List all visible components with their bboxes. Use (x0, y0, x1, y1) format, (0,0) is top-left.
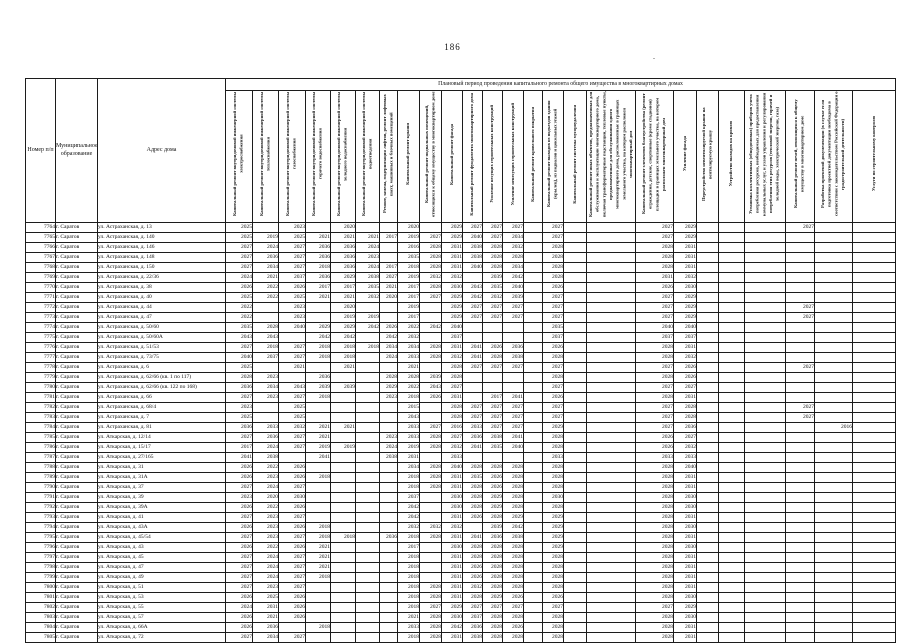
year-cell-4: 2018 (306, 573, 331, 583)
year-cell-12: 2028 (483, 633, 503, 643)
year-cell-3: 2027 (279, 563, 306, 573)
year-cell-10: 2031 (442, 473, 463, 483)
table-row: 7779г. Саратовул. Астраханская, д. 62/66… (26, 373, 896, 383)
year-cell-9: 2028 (420, 353, 442, 363)
municipality-cell: г. Саратов (56, 353, 98, 363)
year-cell-16 (564, 393, 587, 403)
year-cell-24 (815, 443, 853, 453)
year-cell-23 (786, 493, 815, 503)
year-cell-11: 2027 (463, 603, 483, 613)
year-cell-17 (587, 523, 636, 533)
year-cell-23 (786, 443, 815, 453)
year-cell-16 (564, 513, 587, 523)
year-cell-22 (745, 563, 786, 573)
year-cell-2: 2022 (253, 283, 279, 293)
year-cell-9: 2028 (420, 243, 442, 253)
year-cell-8: 2042 (398, 503, 420, 513)
year-cell-25 (853, 503, 896, 513)
year-cell-2: 2022 (253, 293, 279, 303)
year-cell-18: 2028 (636, 493, 674, 503)
year-cell-3: 2027 (279, 633, 306, 643)
table-row: 7764г. Саратовул. Астраханская, д. 13202… (26, 223, 896, 233)
year-cell-11: 2038 (463, 253, 483, 263)
year-cell-18: 2028 (636, 483, 674, 493)
year-cell-25 (853, 563, 896, 573)
year-cell-7 (380, 613, 398, 623)
year-cell-18: 2027 (636, 233, 674, 243)
year-cell-17 (587, 543, 636, 553)
year-cell-18: 2033 (636, 453, 674, 463)
year-cell-17 (587, 393, 636, 403)
municipality-cell: г. Саратов (56, 363, 98, 373)
address-cell: ул. Аткарская, д. 43 (98, 543, 226, 553)
year-cell-23 (786, 333, 815, 343)
municipality-cell: г. Саратов (56, 433, 98, 443)
year-cell-5 (331, 413, 356, 423)
row-number-cell: 7770 (26, 283, 56, 293)
year-cell-6: 2038 (356, 273, 380, 283)
year-cell-18: 2028 (636, 393, 674, 403)
year-cell-14 (524, 263, 543, 273)
year-cell-22 (745, 363, 786, 373)
year-cell-16 (564, 383, 587, 393)
year-cell-22 (745, 613, 786, 623)
year-cell-24 (815, 493, 853, 503)
year-cell-23 (786, 293, 815, 303)
year-cell-11: 2027 (463, 363, 483, 373)
year-cell-11: 2041 (463, 443, 483, 453)
year-cell-22 (745, 593, 786, 603)
year-cell-23 (786, 463, 815, 473)
year-cell-14 (524, 423, 543, 433)
year-cell-19: 2036 (674, 423, 697, 433)
year-cell-22 (745, 383, 786, 393)
year-cell-1: 2027 (226, 583, 253, 593)
year-cell-24 (815, 573, 853, 583)
year-cell-3: 2027 (279, 443, 306, 453)
address-cell: ул. Аткарская, д. 53 (98, 593, 226, 603)
municipality-cell: г. Саратов (56, 503, 98, 513)
municipality-cell: г. Саратов (56, 263, 98, 273)
row-number-cell: 7776 (26, 343, 56, 353)
year-cell-10: 2029 (442, 233, 463, 243)
year-cell-16 (564, 373, 587, 383)
year-cell-4 (306, 613, 331, 623)
year-cell-4: 2018 (306, 263, 331, 273)
year-cell-1: 2026 (226, 463, 253, 473)
year-cell-3: 2037 (279, 273, 306, 283)
year-cell-9 (420, 493, 442, 503)
year-cell-13: 2027 (503, 303, 524, 313)
year-cell-25 (853, 413, 896, 423)
year-cell-18: 2040 (636, 323, 674, 333)
year-cell-24 (815, 263, 853, 273)
year-cell-10: 2031 (442, 243, 463, 253)
address-cell: ул. Аткарская, д. 55 (98, 603, 226, 613)
address-cell: ул. Аткарская, д. 39 (98, 493, 226, 503)
year-cell-6 (356, 583, 380, 593)
year-cell-13: 2032 (503, 243, 524, 253)
year-cell-22 (745, 373, 786, 383)
year-cell-9: 2027 (420, 603, 442, 613)
row-number-cell: 7771 (26, 293, 56, 303)
page-number: 186 (0, 42, 905, 52)
year-cell-25 (853, 353, 896, 363)
year-cell-20 (697, 483, 719, 493)
year-cell-2: 2022 (253, 543, 279, 553)
year-cell-18: 2027 (636, 413, 674, 423)
table-row: 7765г. Саратовул. Астраханская, д. 14020… (26, 233, 896, 243)
year-cell-14 (524, 503, 543, 513)
year-cell-25 (853, 493, 896, 503)
year-cell-6 (356, 393, 380, 403)
year-cell-3: 2027 (279, 573, 306, 583)
year-cell-4: 2017 (306, 283, 331, 293)
year-cell-25 (853, 633, 896, 643)
year-cell-1: 2043 (226, 333, 253, 343)
year-cell-19: 2033 (674, 453, 697, 463)
year-cell-16 (564, 573, 587, 583)
row-number-cell: 7767 (26, 253, 56, 263)
year-cell-24 (815, 563, 853, 573)
municipality-cell: г. Саратов (56, 613, 98, 623)
year-cell-22 (745, 543, 786, 553)
row-number-cell: 7801 (26, 593, 56, 603)
address-cell: ул. Аткарская, д. 31 (98, 463, 226, 473)
year-cell-3: 2027 (279, 433, 306, 443)
year-cell-22 (745, 293, 786, 303)
year-cell-21 (719, 243, 745, 253)
year-cell-9: 2028 (420, 343, 442, 353)
year-cell-13: 2039 (503, 293, 524, 303)
address-cell: ул. Астраханская, д. 140 (98, 233, 226, 243)
year-cell-8: 2034 (398, 343, 420, 353)
year-cell-7: 2042 (380, 333, 398, 343)
year-cell-11: 2028 (463, 543, 483, 553)
year-cell-8: 2018 (398, 533, 420, 543)
year-cell-20 (697, 473, 719, 483)
year-cell-19: 2031 (674, 393, 697, 403)
year-cell-13 (503, 453, 524, 463)
year-cell-1: 2017 (226, 443, 253, 453)
year-cell-25 (853, 543, 896, 553)
address-cell: ул. Аткарская, д. 45 (98, 553, 226, 563)
year-cell-9 (420, 453, 442, 463)
year-cell-19: 2029 (674, 313, 697, 323)
year-cell-13: 2041 (503, 433, 524, 443)
year-cell-18: 2028 (636, 613, 674, 623)
year-cell-7 (380, 473, 398, 483)
year-cell-4: 2018 (306, 353, 331, 363)
year-cell-21 (719, 613, 745, 623)
work-type-header-1: Капитальный ремонт внутридомовой инженер… (226, 91, 253, 223)
year-cell-9 (420, 363, 442, 373)
year-cell-2: 2024 (253, 573, 279, 583)
year-cell-17 (587, 463, 636, 473)
year-cell-13: 2027 (503, 363, 524, 373)
year-cell-21 (719, 383, 745, 393)
work-type-header-label: Капитальный ремонт внутридомовой инженер… (361, 91, 374, 217)
year-cell-22 (745, 603, 786, 613)
year-cell-14 (524, 533, 543, 543)
year-cell-23 (786, 613, 815, 623)
row-number-cell: 7764 (26, 223, 56, 233)
year-cell-4 (306, 403, 331, 413)
address-cell: ул. Астраханская, д. 73/75 (98, 353, 226, 363)
row-number-cell: 7786 (26, 443, 56, 453)
year-cell-24 (815, 393, 853, 403)
year-cell-24 (815, 383, 853, 393)
year-cell-25 (853, 373, 896, 383)
year-cell-7 (380, 553, 398, 563)
year-cell-12: 2028 (483, 613, 503, 623)
year-cell-12: 2027 (483, 233, 503, 243)
year-cell-10: 2031 (442, 533, 463, 543)
year-cell-6 (356, 543, 380, 553)
year-cell-24 (815, 553, 853, 563)
year-cell-10: 2029 (442, 223, 463, 233)
year-cell-15: 2028 (543, 583, 564, 593)
year-cell-8: 2021 (398, 613, 420, 623)
year-cell-15: 2028 (543, 633, 564, 643)
row-number-cell: 7797 (26, 553, 56, 563)
year-cell-4 (306, 493, 331, 503)
year-cell-23: 2027 (786, 403, 815, 413)
work-type-header-17: Капитальный ремонт иных объектов, предна… (587, 91, 636, 223)
year-cell-3: 2027 (279, 243, 306, 253)
year-cell-21 (719, 413, 745, 423)
work-type-header-label: Разработка проектной документации (в слу… (820, 91, 847, 217)
year-cell-5 (331, 373, 356, 383)
municipality-cell: г. Саратов (56, 463, 98, 473)
year-cell-2: 2023 (253, 513, 279, 523)
year-cell-11: 2028 (463, 463, 483, 473)
year-cell-7 (380, 363, 398, 373)
year-cell-13: 2028 (503, 543, 524, 553)
year-cell-4 (306, 223, 331, 233)
year-cell-13: 2028 (503, 463, 524, 473)
year-cell-12: 2038 (483, 433, 503, 443)
year-cell-11: 2042 (463, 293, 483, 303)
year-cell-6 (356, 373, 380, 383)
municipality-cell: г. Саратов (56, 633, 98, 643)
year-cell-15: 2027 (543, 383, 564, 393)
year-cell-1: 2023 (226, 403, 253, 413)
municipality-cell: г. Саратов (56, 443, 98, 453)
year-cell-2: 2023 (253, 533, 279, 543)
address-cell: ул. Астраханская, д. 148 (98, 253, 226, 263)
municipality-cell: г. Саратов (56, 233, 98, 243)
year-cell-8: 2021 (398, 363, 420, 373)
year-cell-6 (356, 403, 380, 413)
year-cell-11: 2027 (463, 403, 483, 413)
year-cell-20 (697, 603, 719, 613)
year-cell-19: 2031 (674, 583, 697, 593)
row-number-cell: 7766 (26, 243, 56, 253)
year-cell-6 (356, 573, 380, 583)
year-cell-11: 2037 (463, 613, 483, 623)
year-cell-8: 2022 (398, 323, 420, 333)
year-cell-15: 2028 (543, 273, 564, 283)
year-cell-1: 2027 (226, 553, 253, 563)
year-cell-8: 2018 (398, 553, 420, 563)
year-cell-8: 2016 (398, 243, 420, 253)
year-cell-22 (745, 223, 786, 233)
year-cell-21 (719, 473, 745, 483)
year-cell-16 (564, 243, 587, 253)
year-cell-4 (306, 583, 331, 593)
year-cell-17 (587, 613, 636, 623)
year-cell-16 (564, 223, 587, 233)
year-cell-6 (356, 523, 380, 533)
year-cell-18: 2028 (636, 503, 674, 513)
year-cell-21 (719, 363, 745, 373)
year-cell-17 (587, 623, 636, 633)
address-cell: ул. Астраханская, д. 62/66 (кв. 1 по 117… (98, 373, 226, 383)
year-cell-20 (697, 443, 719, 453)
column-header-municipality: Муниципальное образование (56, 79, 98, 223)
year-cell-9: 2027 (420, 293, 442, 303)
work-type-header-14: Капитальный ремонт кровельного покрытия (524, 91, 543, 223)
year-cell-13: 2028 (503, 553, 524, 563)
year-cell-15: 2028 (543, 503, 564, 513)
year-cell-22 (745, 253, 786, 263)
table-row: 7787г. Саратовул. Аткарская, д. 27/16520… (26, 453, 896, 463)
year-cell-8: 2018 (398, 593, 420, 603)
address-cell: ул. Аткарская, д. 72 (98, 633, 226, 643)
year-cell-2: 2023 (253, 393, 279, 403)
year-cell-25 (853, 583, 896, 593)
year-cell-22 (745, 333, 786, 343)
year-cell-2: 2023 (253, 583, 279, 593)
year-cell-10: 2031 (442, 633, 463, 643)
year-cell-5: 2020 (331, 303, 356, 313)
year-cell-5 (331, 463, 356, 473)
year-cell-13: 2040 (503, 283, 524, 293)
year-cell-10: 2028 (442, 413, 463, 423)
year-cell-16 (564, 623, 587, 633)
year-cell-23 (786, 373, 815, 383)
column-group-header-planned-period: Плановый период проведения капитального … (226, 79, 896, 91)
work-type-header-label: Капитальный ремонт выходов из подъездов … (546, 91, 559, 217)
year-cell-3 (279, 373, 306, 383)
year-cell-7 (380, 523, 398, 533)
table-row: 7772г. Саратовул. Астраханская, д. 44202… (26, 303, 896, 313)
year-cell-5 (331, 513, 356, 523)
table-row: 7794г. Саратовул. Аткарская, д. 43А20262… (26, 523, 896, 533)
year-cell-19: 2028 (674, 403, 697, 413)
year-cell-22 (745, 233, 786, 243)
year-cell-16 (564, 333, 587, 343)
year-cell-13: 2027 (503, 423, 524, 433)
year-cell-14 (524, 353, 543, 363)
year-cell-8: 2033 (398, 433, 420, 443)
year-cell-2: 2038 (253, 453, 279, 463)
year-cell-2: 2023 (253, 523, 279, 533)
year-cell-6: 2023 (356, 253, 380, 263)
year-cell-21 (719, 553, 745, 563)
year-cell-6 (356, 533, 380, 543)
municipality-cell: г. Саратов (56, 293, 98, 303)
column-header-address: Адрес дома (98, 79, 226, 223)
row-number-cell: 7772 (26, 303, 56, 313)
year-cell-20 (697, 323, 719, 333)
year-cell-15: 2027 (543, 603, 564, 613)
year-cell-15: 2028 (543, 463, 564, 473)
year-cell-7: 2038 (380, 453, 398, 463)
year-cell-2: 2034 (253, 633, 279, 643)
work-type-header-label: Переустройство невентилируемой крыши на … (701, 91, 714, 217)
table-row: 7793г. Саратовул. Аткарская, д. 41202720… (26, 513, 896, 523)
year-cell-25 (853, 483, 896, 493)
work-type-header-label: Услуги по строительному контролю (871, 116, 878, 191)
year-cell-13 (503, 333, 524, 343)
year-cell-12: 2027 (483, 223, 503, 233)
year-cell-21 (719, 453, 745, 463)
year-cell-23 (786, 453, 815, 463)
year-cell-15: 2026 (543, 593, 564, 603)
year-cell-8: 2018 (398, 263, 420, 273)
year-cell-17 (587, 403, 636, 413)
year-cell-13: 2038 (503, 353, 524, 363)
year-cell-23: 2027 (786, 223, 815, 233)
table-row: 7802г. Саратовул. Аткарская, д. 55202420… (26, 603, 896, 613)
year-cell-8: 2018 (398, 573, 420, 583)
year-cell-5: 2042 (331, 333, 356, 343)
year-cell-19: 2031 (674, 553, 697, 563)
table-row: 7777г. Саратовул. Астраханская, д. 73/75… (26, 353, 896, 363)
year-cell-15: 2027 (543, 223, 564, 233)
year-cell-8: 2031 (398, 453, 420, 463)
year-cell-23 (786, 623, 815, 633)
year-cell-25 (853, 513, 896, 523)
year-cell-5: 2036 (331, 263, 356, 273)
year-cell-14 (524, 273, 543, 283)
table-row: 7800г. Саратовул. Аткарская, д. 51202720… (26, 583, 896, 593)
year-cell-24 (815, 593, 853, 603)
year-cell-12 (483, 453, 503, 463)
year-cell-10: 2031 (442, 253, 463, 263)
year-cell-20 (697, 363, 719, 373)
year-cell-2: 2021 (253, 613, 279, 623)
year-cell-14 (524, 583, 543, 593)
year-cell-17 (587, 273, 636, 283)
year-cell-2 (253, 403, 279, 413)
year-cell-1: 2025 (226, 363, 253, 373)
year-cell-11: 2028 (463, 593, 483, 603)
year-cell-15: 2035 (543, 323, 564, 333)
year-cell-2 (253, 363, 279, 373)
year-cell-14 (524, 593, 543, 603)
year-cell-19: 2029 (674, 293, 697, 303)
year-cell-2 (253, 313, 279, 323)
year-cell-16 (564, 423, 587, 433)
year-cell-16 (564, 443, 587, 453)
year-cell-10: 2029 (442, 313, 463, 323)
year-cell-3: 2027 (279, 553, 306, 563)
year-cell-11: 2036 (463, 623, 483, 633)
table-row: 7776г. Саратовул. Астраханская, д. 51/53… (26, 343, 896, 353)
year-cell-23 (786, 393, 815, 403)
year-cell-6 (356, 363, 380, 373)
year-cell-7: 2024 (380, 443, 398, 453)
year-cell-9 (420, 563, 442, 573)
year-cell-19: 2031 (674, 243, 697, 253)
year-cell-17 (587, 583, 636, 593)
year-cell-1: 2026 (226, 283, 253, 293)
year-cell-11: 2036 (463, 433, 483, 443)
year-cell-11: 2028 (463, 493, 483, 503)
